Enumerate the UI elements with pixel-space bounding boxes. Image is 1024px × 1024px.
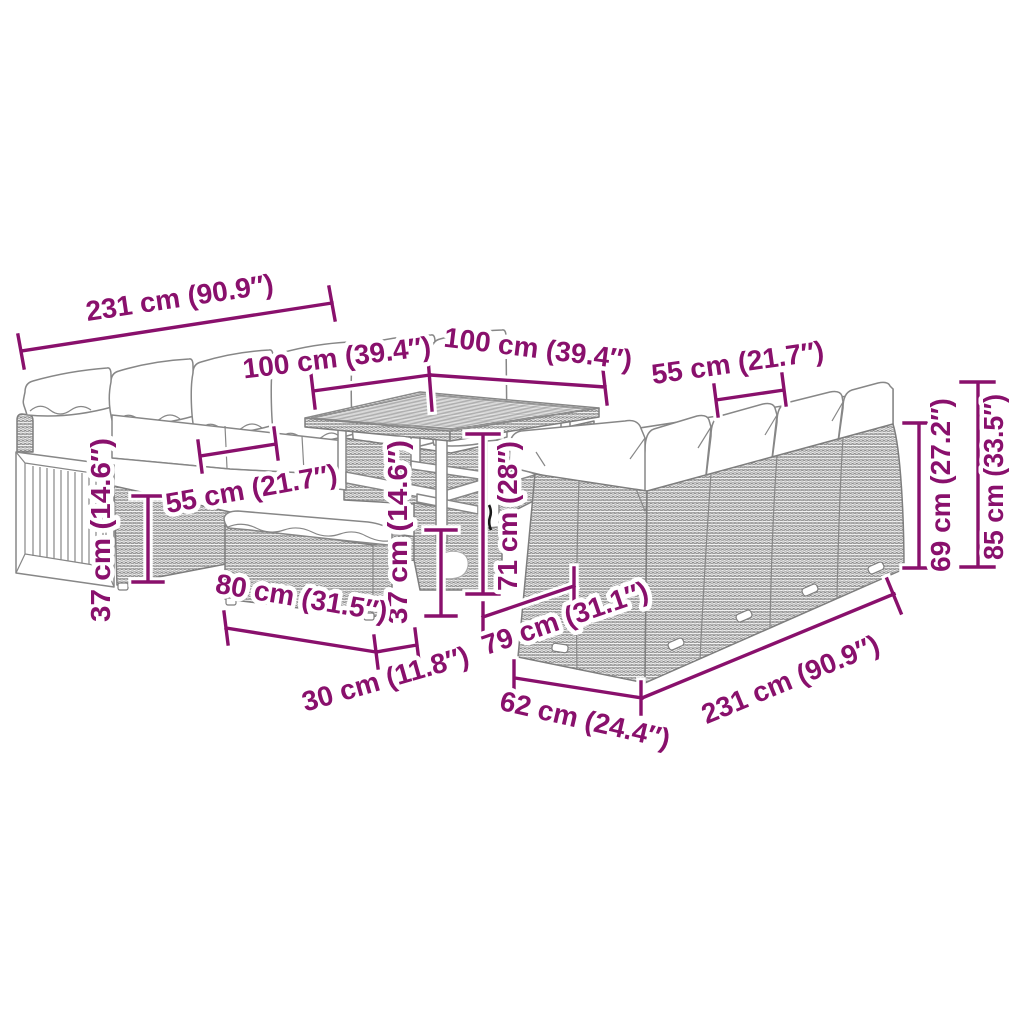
svg-text:71 cm (28″): 71 cm (28″) — [492, 441, 523, 591]
svg-text:69 cm (27.2″): 69 cm (27.2″) — [925, 398, 956, 572]
svg-text:85 cm (33.5″): 85 cm (33.5″) — [978, 394, 1009, 560]
svg-text:55 cm (21.7″): 55 cm (21.7″) — [649, 335, 825, 390]
svg-text:37 cm (14.6″): 37 cm (14.6″) — [85, 438, 116, 622]
